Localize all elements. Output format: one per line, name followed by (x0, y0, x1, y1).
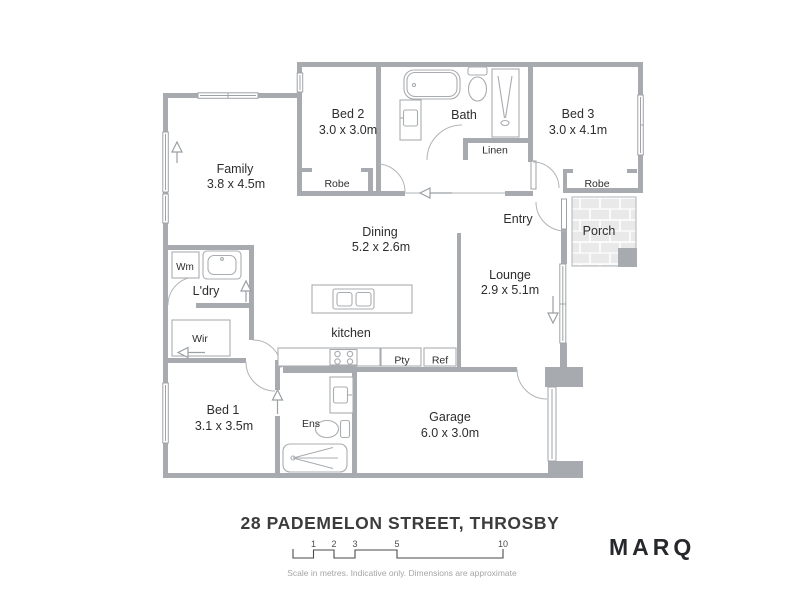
label-bed3: Bed 3 (562, 107, 595, 121)
bed1-door-arc (246, 362, 275, 391)
brand-logo: MARQ (609, 534, 695, 560)
toilet-icon (468, 67, 487, 101)
label-bed1: Bed 1 (207, 403, 240, 417)
label-wir: Wir (192, 333, 208, 345)
scale-tick-1: 1 (311, 539, 316, 549)
scale-bar-line (293, 549, 503, 558)
family-up-arrow-icon (172, 142, 182, 163)
scale-tick-2: 2 (331, 539, 336, 549)
label-pantry: Pty (394, 355, 410, 367)
scale-tick-10: 10 (498, 539, 508, 549)
label-porch: Porch (583, 224, 616, 238)
label-dining: Dining (362, 225, 397, 239)
label-bed1-dims: 3.1 x 3.5m (195, 419, 253, 433)
label-robe-bed2: Robe (324, 178, 349, 190)
vanity-icon (400, 100, 421, 140)
label-dining-dims: 5.2 x 2.6m (352, 240, 410, 254)
ens-toilet-icon (316, 421, 350, 438)
label-bed3-dims: 3.0 x 4.1m (549, 123, 607, 137)
label-kitchen: kitchen (331, 326, 371, 340)
corridor-door-arc (377, 164, 405, 192)
scale-disclaimer: Scale in metres. Indicative only. Dimens… (287, 568, 517, 578)
porch-pillar (618, 248, 637, 267)
label-garage: Garage (429, 410, 471, 424)
front-door-arc (536, 202, 565, 231)
kitchen-bench-icon (278, 348, 380, 366)
label-bed2: Bed 2 (332, 107, 365, 121)
corridor-left-arrow-icon (420, 188, 452, 198)
label-family: Family (217, 162, 255, 176)
scale-tick-3: 3 (352, 539, 357, 549)
label-family-dims: 3.8 x 4.5m (207, 177, 265, 191)
label-ensuite: Ens (302, 418, 320, 430)
label-bed2-dims: 3.0 x 3.0m (319, 123, 377, 137)
label-laundry: L'dry (193, 284, 220, 298)
floor-plan: Family 3.8 x 4.5m Bed 2 3.0 x 3.0m Bath … (0, 0, 800, 600)
label-lounge: Lounge (489, 268, 531, 282)
ens-up-arrow-icon (273, 390, 283, 414)
ens-vanity-icon (330, 377, 353, 413)
address-title: 28 PADEMELON STREET, THROSBY (241, 513, 560, 533)
scale-bar: 1 2 3 5 10 (293, 539, 508, 558)
label-fridge: Ref (432, 355, 448, 367)
label-lounge-dims: 2.9 x 5.1m (481, 283, 539, 297)
label-garage-dims: 6.0 x 3.0m (421, 426, 479, 440)
bath-door-arc (427, 125, 462, 160)
floorplan-page: Family 3.8 x 4.5m Bed 2 3.0 x 3.0m Bath … (0, 0, 800, 600)
bathtub-icon (404, 70, 460, 99)
bed3-door-leaf (531, 161, 536, 189)
footer: 28 PADEMELON STREET, THROSBY 1 2 3 5 10 … (241, 513, 696, 578)
scale-tick-5: 5 (394, 539, 399, 549)
label-entry: Entry (503, 212, 533, 226)
label-wm: Wm (176, 262, 194, 273)
lounge-down-arrow-icon (548, 296, 558, 323)
kitchen-island-icon (312, 285, 412, 313)
front-door-leaf (562, 199, 567, 229)
laundry-tub-icon (203, 251, 241, 279)
bed3-door-arc (533, 162, 559, 188)
shower-icon (492, 69, 519, 137)
label-robe-bed3: Robe (584, 178, 609, 190)
label-linen: Linen (482, 145, 508, 157)
garage-door-arc (517, 369, 547, 399)
ens-shower-icon (283, 444, 347, 472)
label-bath: Bath (451, 108, 477, 122)
